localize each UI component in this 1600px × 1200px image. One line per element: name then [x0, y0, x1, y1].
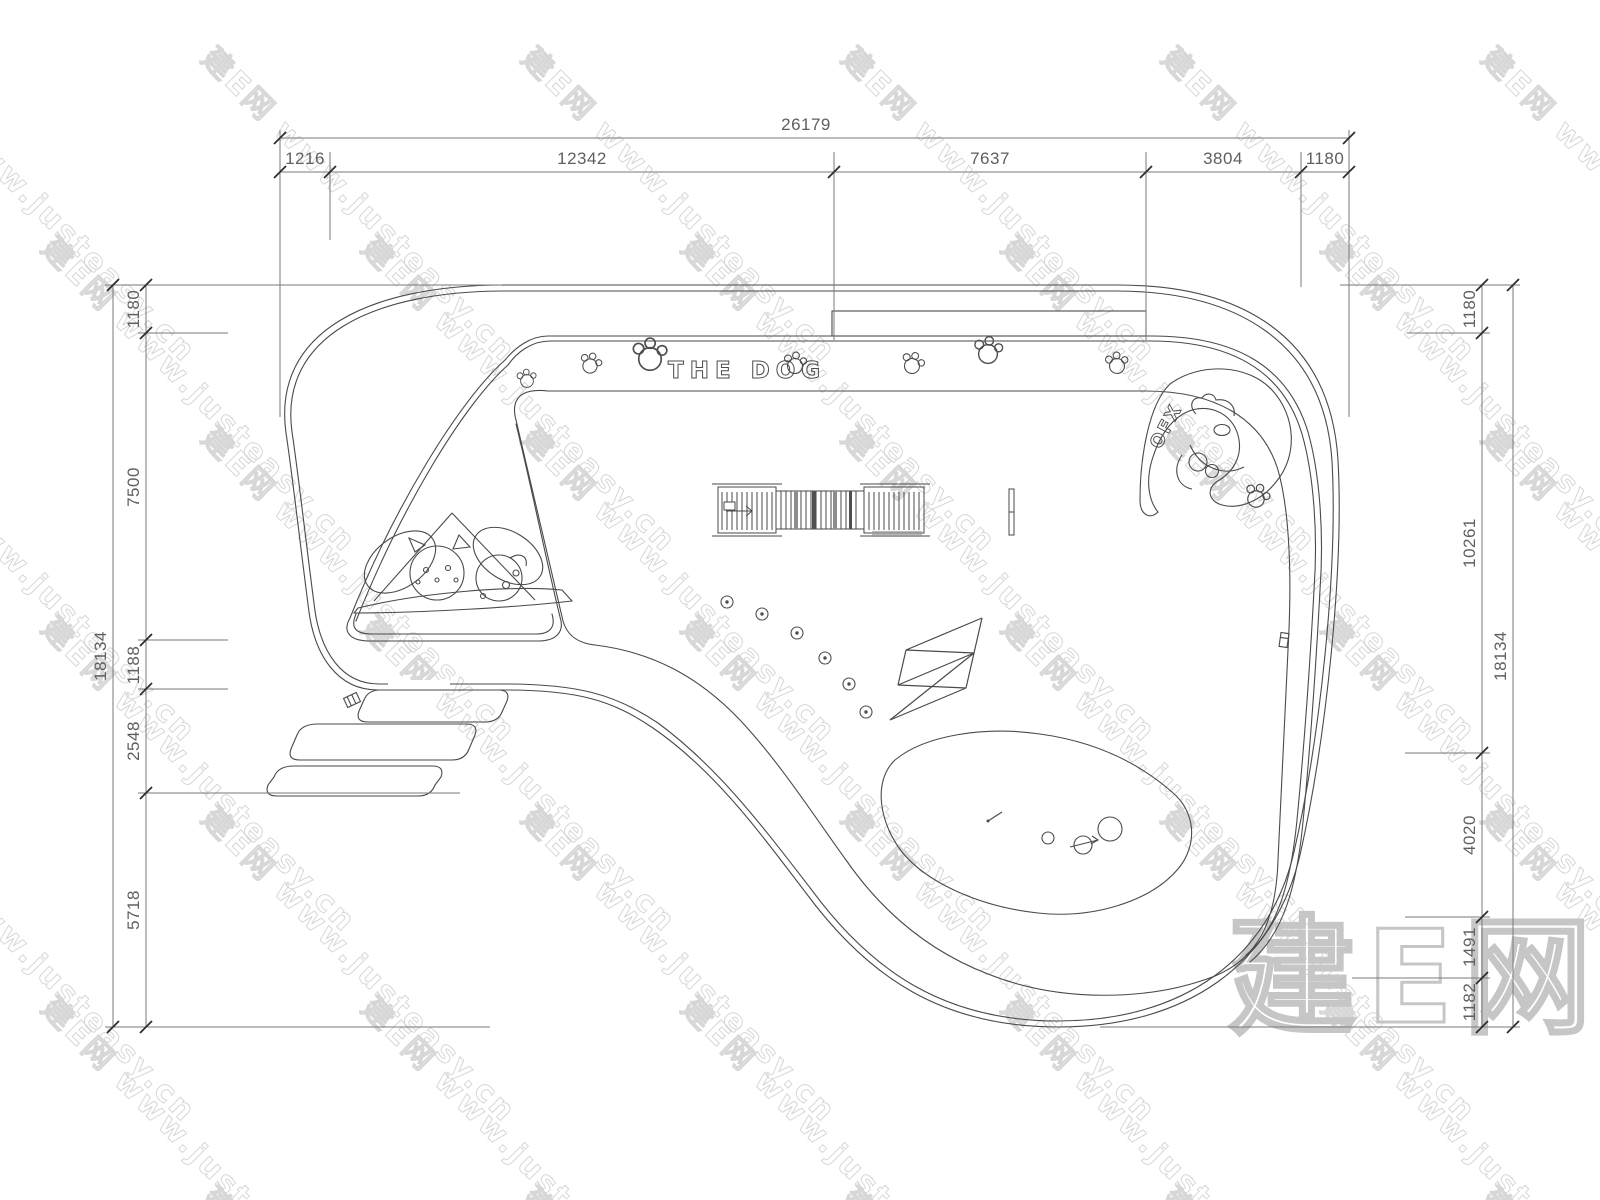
watermark-text: 建E网 www.justeasy.cn [1474, 41, 1600, 370]
dim-right-seg-3: 1491 [1460, 927, 1479, 967]
watermark-text: 建E网 www.justeasy.cn [674, 231, 1003, 560]
dim-top-seg-2: 7637 [970, 149, 1010, 168]
dim-left-seg-1: 7500 [124, 467, 143, 507]
watermark-text: 建E网 www.justeasy.cn [514, 41, 843, 370]
watermark-text: 建E网 www.justeasy.cn [34, 991, 363, 1200]
watermark-text: 建E网 www.justeasy.cn [354, 991, 683, 1200]
watermark-text: 建E网 www.justeasy.cn [34, 231, 363, 560]
watermark-text: 建E网 www.justeasy.cn [194, 421, 523, 750]
watermark-text: 建E网 www.justeasy.cn [34, 611, 363, 940]
dim-right-seg-1: 10261 [1460, 518, 1479, 568]
gate-marker-right [1279, 633, 1289, 648]
watermark-text: 建E网 www.justeasy.cn [834, 41, 1163, 370]
dim-right-total: 18134 [1491, 631, 1510, 681]
pond-stone-small [1042, 832, 1054, 844]
weave-zigzag [890, 618, 982, 720]
park-name-label: THE DOG [668, 358, 826, 384]
watermark-text: 建E网 www.justeasy.cn [1474, 421, 1600, 750]
watermark-text: 建E网 www.justeasy.cn [994, 231, 1323, 560]
dim-top-seg-4: 1180 [1306, 149, 1345, 168]
dim-left-seg-4: 5718 [124, 890, 143, 930]
watermark-text: 建E网 www.justeasy.cn [194, 801, 523, 1130]
dim-left-seg-3: 2548 [124, 721, 143, 761]
dim-top-seg-1: 12342 [557, 149, 607, 168]
dim-top-seg-0: 1216 [285, 149, 325, 168]
watermark-text: 建E网 www.justeasy.cn [994, 611, 1323, 940]
pond-stone-large [1098, 817, 1122, 841]
watermark-text: 建E网 www.justeasy.cn [194, 41, 523, 370]
dim-left-seg-2: 1188 [124, 646, 143, 685]
dim-top-seg-3: 3804 [1203, 149, 1243, 168]
dim-top-total: 26179 [781, 115, 831, 134]
gate-marker-left [344, 693, 361, 708]
watermark-text: 建E网 www.justeasy.cn [354, 231, 683, 560]
watermark-text: 建E网 www.justeasy.cn [354, 611, 683, 940]
watermark-text: 建E网 www.justeasy.cn [1154, 421, 1483, 750]
watermark-text: 建E网 www.justeasy.cn [0, 1181, 203, 1200]
step-3 [267, 766, 442, 796]
floor-plan-svg: 建E网 www.justeasy.cn建E网 www.justeasy.cn建E… [0, 0, 1600, 1200]
watermark-text: 建E网 www.justeasy.cn [1154, 41, 1483, 370]
watermark-text: 建E网 www.justeasy.cn [514, 801, 843, 1130]
dim-right-seg-2: 4020 [1460, 815, 1479, 855]
watermark-text: 建E网 www.justeasy.cn [514, 421, 843, 750]
dim-left-seg-0: 1180 [124, 290, 143, 329]
watermark-text: 建E网 www.justeasy.cn [834, 421, 1163, 750]
dim-right-seg-4: 1182 [1460, 983, 1479, 1022]
gate-opening [388, 680, 450, 693]
dim-right-seg-0: 1180 [1460, 290, 1479, 329]
cad-floor-plan: 建E网 www.justeasy.cn建E网 www.justeasy.cn建E… [0, 0, 1600, 1200]
watermark-text: 建E网 www.justeasy.cn [674, 991, 1003, 1200]
step-2 [290, 724, 476, 760]
dim-left-total: 18134 [91, 631, 110, 681]
